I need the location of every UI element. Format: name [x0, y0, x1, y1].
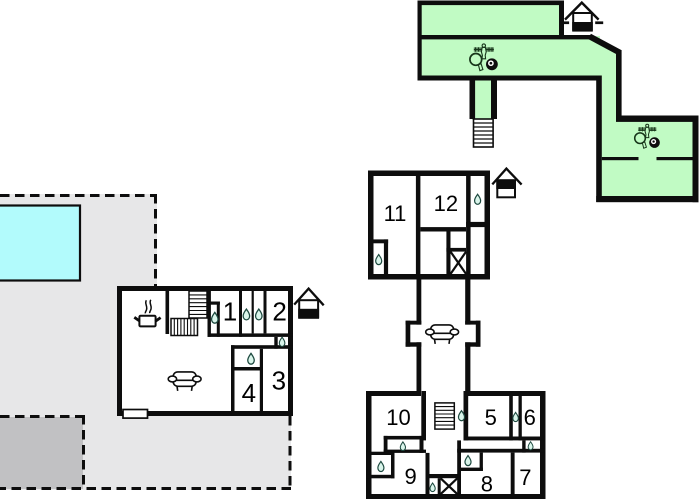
svg-text:3: 3: [272, 365, 286, 395]
svg-text:11: 11: [384, 201, 407, 226]
svg-text:1: 1: [223, 297, 237, 327]
svg-text:5: 5: [485, 405, 497, 430]
svg-text:7: 7: [519, 465, 531, 490]
svg-text:8: 8: [481, 472, 493, 497]
svg-text:9: 9: [404, 464, 416, 489]
svg-text:4: 4: [242, 378, 256, 408]
svg-text:2: 2: [272, 297, 286, 327]
svg-text:12: 12: [434, 191, 458, 216]
svg-text:6: 6: [524, 405, 536, 430]
svg-text:10: 10: [386, 405, 410, 430]
